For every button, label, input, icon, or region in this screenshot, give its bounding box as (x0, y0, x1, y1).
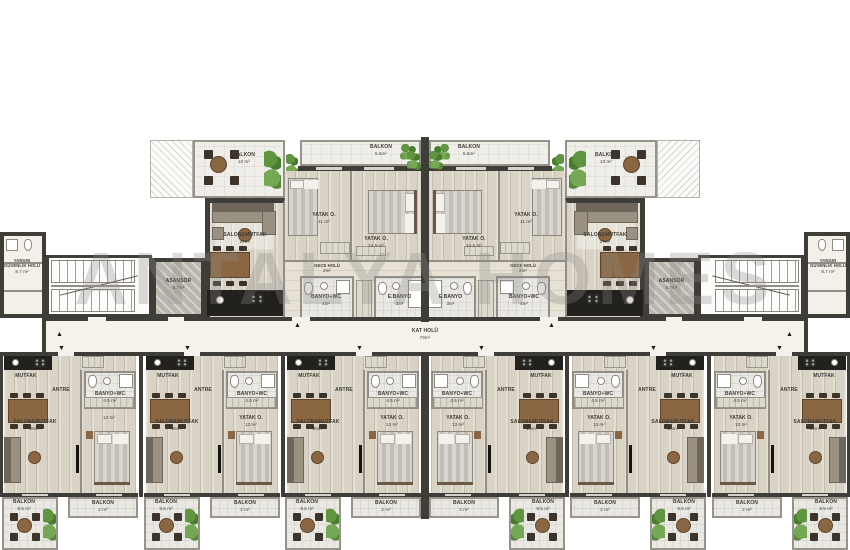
door-opening (478, 352, 494, 356)
entry-closet (224, 356, 246, 368)
sink-icon (831, 359, 838, 366)
stair-rail (715, 285, 799, 287)
balcony-table (300, 518, 315, 533)
toilet-icon (230, 375, 239, 388)
stair-flight (51, 289, 135, 312)
tv-unit (76, 445, 79, 473)
entry-label: ANTRE (772, 387, 806, 394)
wall (808, 290, 846, 292)
apartment-garden-2: MUTFAK BANYO+WC4.5 m² ANTRE SALON&MUTFAK… (144, 353, 280, 550)
balcony-door (22, 494, 48, 496)
bedroom-large-label: YATAK O.14.5 m² (450, 236, 498, 248)
balcony-label: BALKON5.5m² (356, 144, 406, 156)
bedroom-small-label: YATAK O.11 m² (298, 212, 350, 224)
tv-unit (629, 445, 632, 473)
sofa-back (557, 437, 563, 483)
sink-icon (216, 296, 224, 304)
toilet-icon (371, 375, 380, 388)
shower-icon (402, 374, 416, 388)
balcony-small-label: BALKON2 m² (578, 500, 632, 512)
balcony-window (728, 494, 754, 496)
bathroom-label: BANYO+WC4.5 m² (228, 391, 276, 403)
living-label: SALON&MUTFAK27m² (210, 232, 280, 244)
balcony-table (676, 518, 691, 533)
stove-icon (804, 358, 816, 367)
pillow (455, 434, 470, 444)
bedroom-large-label: YATAK O.14.5 m² (352, 236, 400, 248)
pillow (290, 180, 304, 189)
sink-icon (450, 282, 458, 290)
pillow (97, 434, 112, 444)
window (456, 167, 486, 170)
toilet-icon (88, 375, 97, 388)
door-opening (744, 317, 762, 321)
apartment-garden-1: MUTFAK BANYO+WC4.5 m² ANTRE SALON&MUTFAK… (2, 353, 138, 550)
night-hall-label: GECE HOLÜ2m² (502, 263, 544, 274)
sink-icon (626, 296, 634, 304)
chair-icon (10, 513, 18, 521)
sofa-back (212, 203, 274, 211)
corner-balcony-label: BALKON10 m² (220, 152, 268, 164)
entry-label: ANTRE (489, 387, 523, 394)
sofa (10, 437, 21, 483)
bed-frame (437, 482, 473, 485)
door-opening (650, 352, 666, 356)
living-label: SALON&MUTFAK26m² (146, 419, 208, 431)
bed-frame (578, 482, 614, 485)
party-wall (281, 353, 285, 497)
headboard (414, 190, 417, 234)
bedroom-wall (485, 370, 487, 493)
apartment-garden-6: MUTFAK BANYO+WC4.5 m² ANTRE SALON&MUTFAK… (712, 353, 848, 550)
sink-icon (392, 282, 400, 290)
entry-arrow-icon: ▲ (294, 322, 301, 329)
plant-icon (407, 148, 421, 172)
shower-icon (575, 374, 589, 388)
fire-stair-block (0, 232, 46, 318)
sink-icon (154, 359, 161, 366)
tv-unit (771, 445, 774, 473)
toilet-icon (753, 375, 762, 388)
balcony-small-label: BALKON2 m² (720, 500, 774, 512)
balcony-window (238, 494, 264, 496)
bedroom-label: YATAK O.13 m² (431, 415, 485, 427)
elevator-label: ASANSÖR6.7m² (645, 278, 698, 290)
balcony-large-label: BALKON9.5 m² (664, 499, 704, 511)
door-opening (292, 317, 310, 321)
shower-icon (6, 239, 18, 251)
sink-icon (739, 377, 747, 385)
door-opening (58, 352, 74, 356)
balcony-window (586, 494, 612, 496)
entry-arrow-icon: ▼ (356, 345, 363, 352)
entry-arrow-icon: ▼ (478, 345, 485, 352)
sink-icon (320, 282, 328, 290)
chair-icon (152, 513, 160, 521)
kitchen-label: MUTFAK (146, 373, 190, 380)
floor-plan: BALKON10 m² BALKON5.5m² SALON&MUTFAK27m²… (0, 0, 850, 550)
entry-closet (365, 356, 387, 368)
chair-icon (629, 246, 637, 251)
party-wall (421, 497, 429, 519)
chair-icon (10, 393, 18, 398)
entry-label: ANTRE (44, 387, 78, 394)
nightstand (369, 431, 376, 439)
bed-frame (720, 482, 756, 485)
window (508, 167, 534, 170)
coffee-table (809, 451, 822, 464)
balcony-door (519, 494, 545, 496)
party-wall (565, 353, 569, 497)
chair-icon (637, 150, 646, 159)
dining-table (600, 252, 640, 278)
sink-icon (245, 377, 253, 385)
pillow (435, 193, 445, 212)
sofa (152, 437, 163, 483)
bedroom-label: YATAK O.13 m² (365, 415, 419, 427)
corridor-end-wall (804, 317, 808, 356)
bedroom-label: YATAK O.13 m² (572, 415, 626, 427)
closet (478, 280, 494, 318)
chair-icon (293, 393, 301, 398)
entry-arrow-icon: ▼ (776, 345, 783, 352)
ensuite-label: E.BANYO3m² (425, 294, 476, 306)
stair-arrow-icon: ▲ (56, 331, 63, 338)
living-label: SALON&MUTFAK26m² (642, 419, 704, 431)
plant-icon (43, 503, 56, 545)
pillow (380, 434, 395, 444)
apartment-garden-5: MUTFAK BANYO+WC4.5 m² ANTRE SALON&MUTFAK… (570, 353, 706, 550)
balcony-small-label: BALKON2 m² (76, 500, 130, 512)
bedroom-wall (768, 370, 770, 493)
entry-closet (604, 356, 626, 368)
door-opening (776, 352, 792, 356)
stairwell (46, 255, 152, 317)
entry-label: ANTRE (630, 387, 664, 394)
bathroom-label: BANYO+WC4m² (300, 294, 352, 306)
toilet-icon (470, 375, 479, 388)
chair-icon (690, 513, 698, 521)
plant-icon (429, 148, 443, 172)
chair-icon (213, 246, 221, 251)
toilet-icon (818, 239, 826, 251)
stove-icon (521, 358, 533, 367)
sofa (829, 437, 840, 483)
wall (4, 290, 42, 292)
chair-icon (549, 513, 557, 521)
sink-icon (456, 377, 464, 385)
headboard (433, 190, 436, 234)
shower-icon (434, 374, 448, 388)
apartment-garden-4: MUTFAK BANYO+WC4.5 m² ANTRE SALON&MUTFAK… (429, 353, 565, 550)
coffee-table (526, 451, 539, 464)
nightstand (757, 431, 764, 439)
stove-icon (176, 358, 188, 367)
stove-icon (317, 358, 329, 367)
coffee-table (311, 451, 324, 464)
toilet-icon (24, 239, 32, 251)
living-label: SALON&MUTFAK26m² (4, 419, 66, 431)
entry-closet (746, 356, 768, 368)
party-wall (707, 353, 711, 497)
fire-stair-block (804, 232, 850, 318)
closet (356, 280, 372, 318)
terrace-edge (657, 140, 700, 198)
nightstand (228, 431, 235, 439)
entry-label: ANTRE (327, 387, 361, 394)
bedroom-small-label: YATAK O.11 m² (500, 212, 552, 224)
sofa-back (698, 437, 704, 483)
stove-icon (586, 294, 600, 304)
balcony-small-label: BALKON2 m² (437, 500, 491, 512)
bedroom-label: 13 m² (82, 415, 136, 421)
bedroom-label: YATAK O.13 m² (714, 415, 768, 427)
chair-icon (293, 513, 301, 521)
kitchen-label: MUTFAK (802, 373, 846, 380)
shower-icon (717, 374, 731, 388)
bed-frame (377, 482, 413, 485)
entry-arrow-icon: ▼ (184, 345, 191, 352)
chair-icon (832, 393, 840, 398)
living-label: SALON&MUTFAK27m² (570, 232, 640, 244)
balcony-table (17, 518, 32, 533)
balcony-door (660, 494, 686, 496)
bathroom-label: BANYO+WC4.5 m² (86, 391, 134, 403)
corner-balcony-label: BALKON10 m² (582, 152, 630, 164)
window (316, 167, 342, 170)
entry-arrow-icon: ▼ (650, 345, 657, 352)
ensuite-label: E.BANYO3m² (374, 294, 425, 306)
balcony-small-label: BALKON2 m² (359, 500, 413, 512)
balcony-large-label: BALKON9.5 m² (4, 499, 44, 511)
balcony-large-label: BALKON9.5 m² (287, 499, 327, 511)
door-opening (184, 352, 200, 356)
corridor-label: KAT HOLÜ79m² (395, 328, 455, 340)
sink-icon (548, 359, 555, 366)
tv-unit (218, 445, 221, 473)
kitchen-label: MUTFAK (4, 373, 48, 380)
corridor-end-wall (42, 317, 46, 356)
living-label: SALON&MUTFAK26m² (784, 419, 846, 431)
apartment-garden-3: MUTFAK BANYO+WC4.5 m² ANTRE SALON&MUTFAK… (285, 353, 421, 550)
plant-icon (185, 503, 198, 545)
plant-icon (326, 503, 339, 545)
balcony-window (379, 494, 405, 496)
door-opening (666, 317, 682, 321)
living-label: SALON&MUTFAK26m² (287, 419, 349, 431)
coffee-table (28, 451, 41, 464)
door-opening (540, 317, 558, 321)
bedroom-wall (80, 370, 82, 493)
entry-closet (82, 356, 104, 368)
chair-icon (549, 393, 557, 398)
nightstand (86, 431, 93, 439)
balcony-door (802, 494, 828, 496)
balcony-large-label: BALKON9.5 m² (146, 499, 186, 511)
balcony-large-label: BALKON9.5 m² (806, 499, 846, 511)
bathroom-label: BANYO+WC4.5 m² (433, 391, 481, 403)
dining-table (210, 252, 250, 278)
chair-icon (152, 393, 160, 398)
entry-arrow-icon: ▼ (58, 345, 65, 352)
pillow (546, 180, 560, 189)
bed-frame (236, 482, 272, 485)
balcony-door (305, 494, 331, 496)
entry-arrow-icon: ▲ (548, 322, 555, 329)
bedroom-wall (222, 370, 224, 493)
wardrobe (500, 242, 530, 254)
kitchen-label: MUTFAK (287, 373, 331, 380)
chair-icon (832, 513, 840, 521)
window (364, 167, 394, 170)
tv-unit (488, 445, 491, 473)
pillow (738, 434, 753, 444)
chair-icon (690, 393, 698, 398)
elevator-label: ASANSÖR6.7m² (152, 278, 205, 290)
sofa (687, 437, 698, 483)
shower-icon (261, 374, 275, 388)
nightstand (615, 431, 622, 439)
sink-icon (689, 359, 696, 366)
balcony-table (818, 518, 833, 533)
fire-hall-label: YANGIN GÜVENLİK HOLÜ8.7 m² (2, 258, 42, 275)
stair-rail (51, 285, 135, 287)
living-label: SALON&MUTFAK26m² (501, 419, 563, 431)
sink-icon (386, 377, 394, 385)
kitchen-label: MUTFAK (519, 373, 563, 380)
coffee-table (667, 451, 680, 464)
balcony-window (445, 494, 471, 496)
party-wall (421, 353, 429, 497)
door-opening (356, 352, 372, 356)
balcony-small-label: BALKON2 m² (218, 500, 272, 512)
door-opening (88, 317, 106, 321)
tv-unit (359, 445, 362, 473)
pillow (239, 434, 254, 444)
shower-icon (500, 280, 514, 294)
fire-hall-label: YANGIN GÜVENLİK HOLÜ8.7 m² (808, 258, 848, 275)
sink-icon (103, 377, 111, 385)
nightstand (474, 431, 481, 439)
balcony-window (96, 494, 122, 496)
balcony-table (159, 518, 174, 533)
shower-icon (832, 239, 844, 251)
stove-icon (34, 358, 46, 367)
terrace-edge (150, 140, 193, 198)
balcony-label: BALKON5.5m² (444, 144, 494, 156)
bathroom-label: BANYO+WC4.5 m² (716, 391, 764, 403)
toilet-icon (611, 375, 620, 388)
stove-icon (662, 358, 674, 367)
bedroom-wall (626, 370, 628, 493)
entry-closet (463, 356, 485, 368)
sofa-back (840, 437, 846, 483)
bathroom-label: BANYO+WC4m² (498, 294, 550, 306)
balcony-table (535, 518, 550, 533)
sofa (293, 437, 304, 483)
shower-icon (336, 280, 350, 294)
sink-icon (522, 282, 530, 290)
sink-icon (597, 377, 605, 385)
pillow (596, 434, 611, 444)
party-wall (139, 353, 143, 497)
balcony-door (164, 494, 190, 496)
stair-flight (715, 289, 799, 312)
corridor-wall (46, 317, 804, 321)
exterior-wall (0, 353, 3, 497)
shower-icon (119, 374, 133, 388)
sofa-back (576, 203, 638, 211)
sofa (546, 437, 557, 483)
wardrobe (320, 242, 350, 254)
entry-label: ANTRE (186, 387, 220, 394)
sink-icon (295, 359, 302, 366)
door-opening (168, 317, 184, 321)
bathroom-label: BANYO+WC4.5 m² (574, 391, 622, 403)
bedroom-label: YATAK O.13 m² (224, 415, 278, 427)
bathroom-label: BANYO+WC4.5 m² (369, 391, 417, 403)
bed-frame (94, 482, 130, 485)
sink-icon (12, 359, 19, 366)
bedroom-wall (363, 370, 365, 493)
night-hall-label: GECE HOLÜ2m² (306, 263, 348, 274)
stairwell (698, 255, 804, 317)
stove-icon (250, 294, 264, 304)
kitchen-label: MUTFAK (660, 373, 704, 380)
stair-arrow-icon: ▲ (786, 331, 793, 338)
balcony-large-label: BALKON9.5 m² (523, 499, 563, 511)
coffee-table (170, 451, 183, 464)
